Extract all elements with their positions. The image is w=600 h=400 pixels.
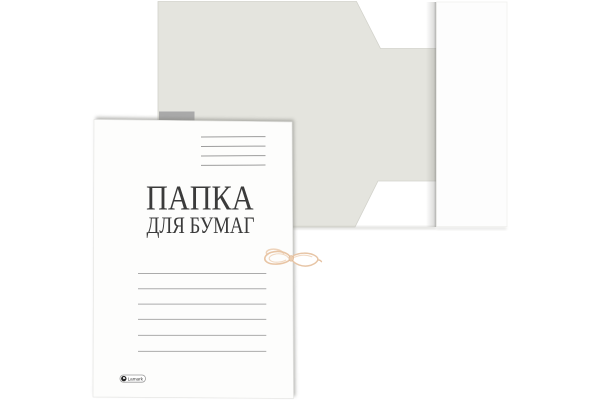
svg-text:ДЛЯ БУМАГ: ДЛЯ БУМАГ [147, 213, 255, 239]
svg-text:Lamark: Lamark [128, 377, 144, 382]
svg-text:ПАПКА: ПАПКА [146, 179, 254, 218]
